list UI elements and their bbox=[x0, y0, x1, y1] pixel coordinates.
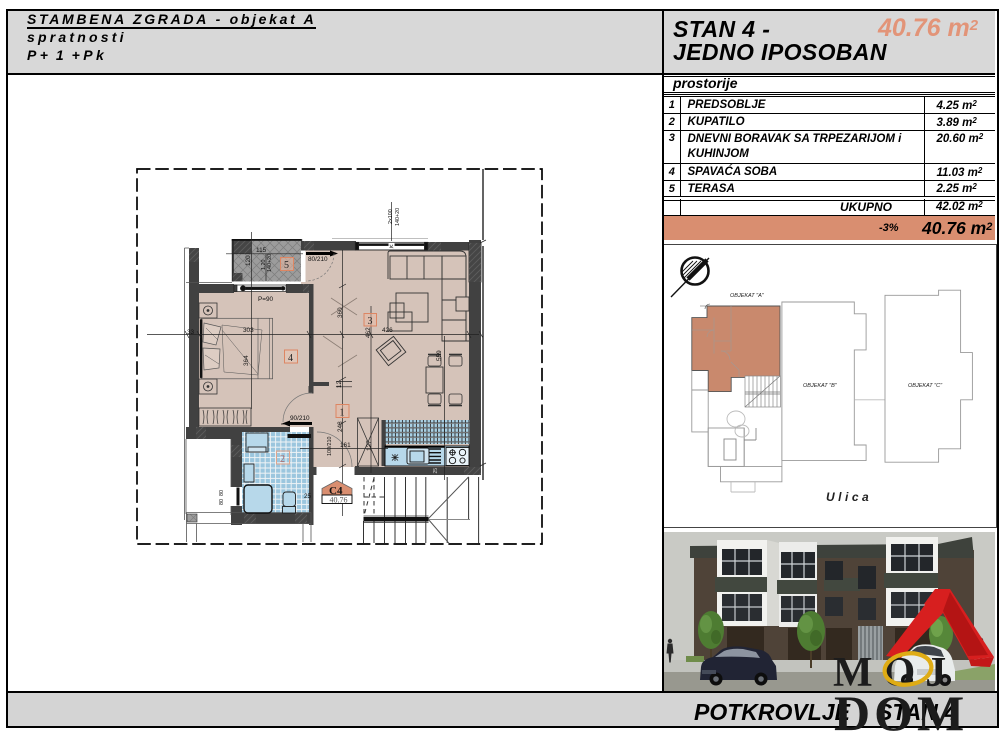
svg-text:DOM: DOM bbox=[834, 685, 968, 741]
